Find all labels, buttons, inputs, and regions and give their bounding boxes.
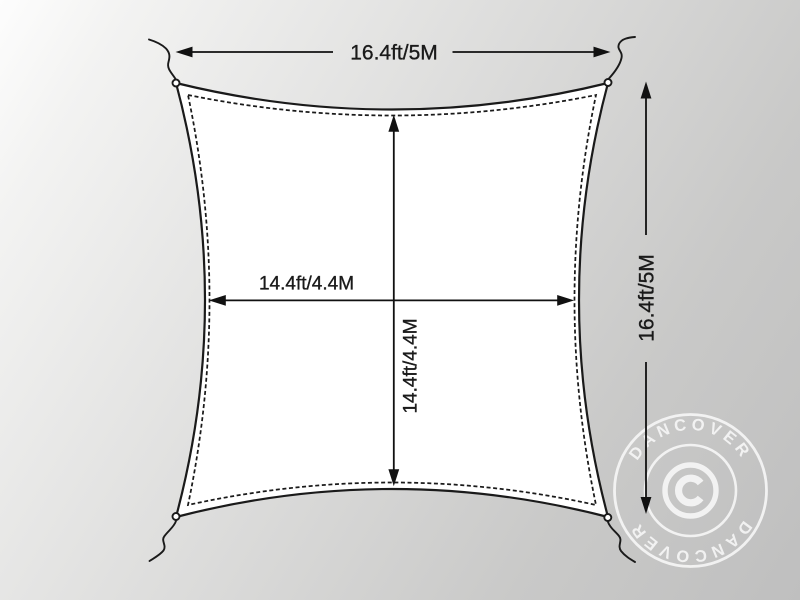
svg-text:DANCOVER: DANCOVER <box>626 518 755 566</box>
svg-text:16.4ft/5M: 16.4ft/5M <box>350 42 438 65</box>
svg-text:14.4ft/4.4M: 14.4ft/4.4M <box>259 274 354 295</box>
svg-text:14.4ft/4.4M: 14.4ft/4.4M <box>400 318 421 413</box>
svg-text:16.4ft/5M: 16.4ft/5M <box>636 254 659 342</box>
